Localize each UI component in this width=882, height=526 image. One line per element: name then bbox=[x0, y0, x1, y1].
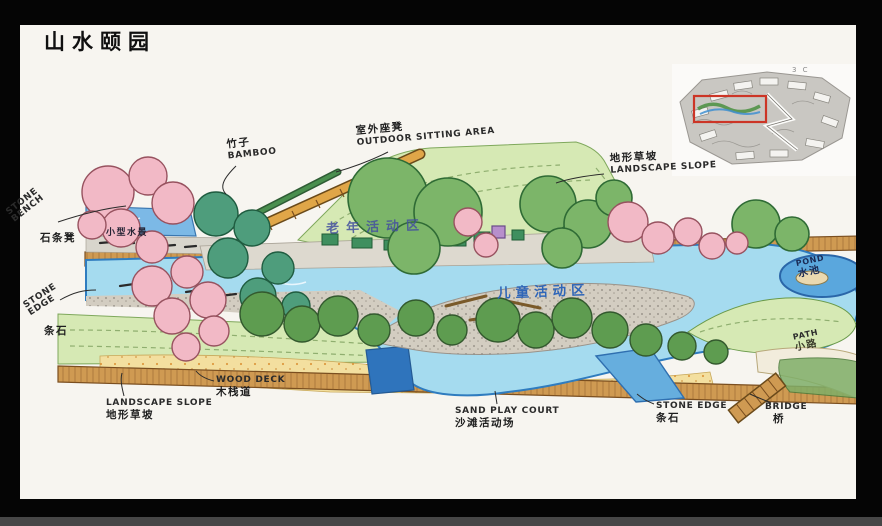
plan-drawing bbox=[0, 0, 882, 526]
stone-edge-bottom-label-zh: 条石 bbox=[656, 412, 727, 425]
zone-label-elderly-activity: 老年活动区 bbox=[326, 214, 427, 236]
wood-deck-label-zh: 木栈道 bbox=[216, 386, 285, 399]
slope-bottom-label-zh: 地形草坡 bbox=[106, 409, 212, 422]
sand-play-label-zh: 沙滩活动场 bbox=[455, 417, 559, 430]
stone-bench-label-zh: 石条凳 bbox=[40, 232, 76, 245]
zone-label-children-activity: 儿童活动区 bbox=[497, 278, 590, 301]
wood-deck-label-en: WOOD DECK bbox=[216, 375, 285, 386]
annotation-landscape-slope-bottom: LANDSCAPE SLOPE 地形草坡 bbox=[106, 398, 212, 421]
slope-bottom-label-en: LANDSCAPE SLOPE bbox=[106, 398, 212, 409]
annotation-stone-edge-left-zh: 条石 bbox=[44, 325, 68, 338]
annotation-stone-edge-bottom: STONE EDGE 条石 bbox=[656, 401, 727, 424]
bridge-label-zh: 桥 bbox=[765, 413, 807, 426]
annotation-sand-play-court: SAND PLAY COURT 沙滩活动场 bbox=[455, 406, 559, 429]
annotation-bridge: BRIDGE 桥 bbox=[765, 402, 807, 425]
water-feature-label-zh: 小型水景 bbox=[106, 228, 148, 239]
stone-edge-left-label-zh: 条石 bbox=[44, 325, 68, 338]
bridge-label-en: BRIDGE bbox=[765, 402, 807, 413]
annotation-stone-bench-zh: 石条凳 bbox=[40, 232, 76, 245]
plan-title: 山水颐园 bbox=[44, 26, 156, 56]
stone-edge-bottom-label-en: STONE EDGE bbox=[656, 401, 727, 412]
slide-canvas: 山水颐园 3 C 老年活动区 儿童活动区 竹子 BAMBOO 室外座凳 OUTD… bbox=[0, 0, 882, 526]
inset-map-note: 3 C bbox=[792, 66, 810, 74]
annotation-wood-deck: WOOD DECK 木栈道 bbox=[216, 375, 285, 398]
annotation-water-feature: 小型水景 bbox=[106, 228, 148, 239]
sand-play-label-en: SAND PLAY COURT bbox=[455, 406, 559, 417]
